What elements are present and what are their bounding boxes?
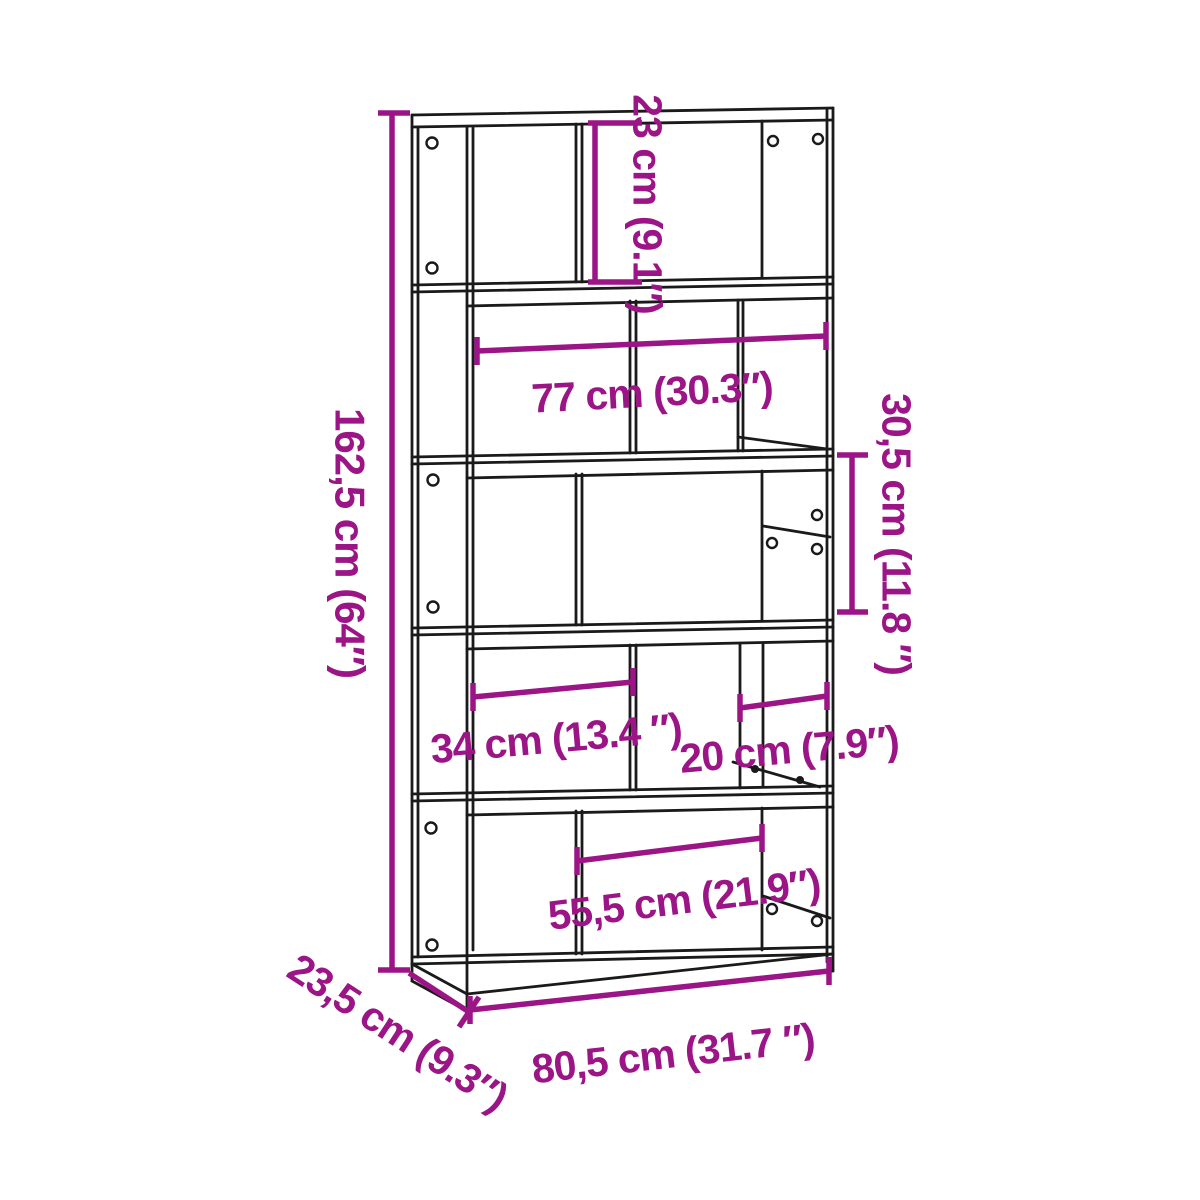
bookcase-dimension-diagram: 162,5 cm (64″) 23 cm (9.1″) 77 cm (30.3″… <box>0 0 1200 1200</box>
screw-hole <box>428 602 439 613</box>
dim-overall-height-label: 162,5 cm (64″) <box>326 408 373 678</box>
screw-hole <box>426 823 437 834</box>
dim-overall-width-label: 80,5 cm (31.7 ″) <box>529 1014 816 1092</box>
dimension-annotations: 162,5 cm (64″) 23 cm (9.1″) 77 cm (30.3″… <box>280 94 920 1120</box>
screw-hole <box>812 916 822 926</box>
dim-right-compartment-width: 20 cm (7.9″) <box>678 682 901 782</box>
dim-overall-width: 80,5 cm (31.7 ″) <box>470 957 829 1092</box>
dim-overall-height: 162,5 cm (64″) <box>326 113 410 970</box>
screw-hole <box>767 538 777 548</box>
shelf-3 <box>412 620 833 649</box>
screw-hole <box>812 544 822 554</box>
screw-hole <box>768 136 778 146</box>
dim-right-compartment-width-label: 20 cm (7.9″) <box>678 717 901 782</box>
dim-bottom-compartment-width: 55,5 cm (21.9″) <box>545 824 822 939</box>
screw-hole <box>812 510 822 520</box>
screw-hole <box>813 134 823 144</box>
shelf-4 <box>412 786 833 815</box>
dimension-diagram-page: 162,5 cm (64″) 23 cm (9.1″) 77 cm (30.3″… <box>0 0 1200 1200</box>
screw-hole <box>427 138 438 149</box>
dim-top-compartment-height-label: 23 cm (9.1″) <box>625 94 671 314</box>
screw-hole <box>427 263 438 274</box>
dim-interior-width: 77 cm (30.3″) <box>477 322 826 422</box>
dim-compartment-height-label: 30,5 cm (11.8 ″) <box>874 393 920 675</box>
dim-bottom-compartment-width-label: 55,5 cm (21.9″) <box>545 860 822 939</box>
dim-compartment-height: 30,5 cm (11.8 ″) <box>837 393 920 675</box>
tier-3-dividers <box>576 471 830 625</box>
shelf-2 <box>412 449 833 478</box>
screw-hole <box>427 940 438 951</box>
dim-top-compartment-height: 23 cm (9.1″) <box>588 94 671 314</box>
screw-hole <box>796 776 804 784</box>
screw-hole <box>428 475 439 486</box>
